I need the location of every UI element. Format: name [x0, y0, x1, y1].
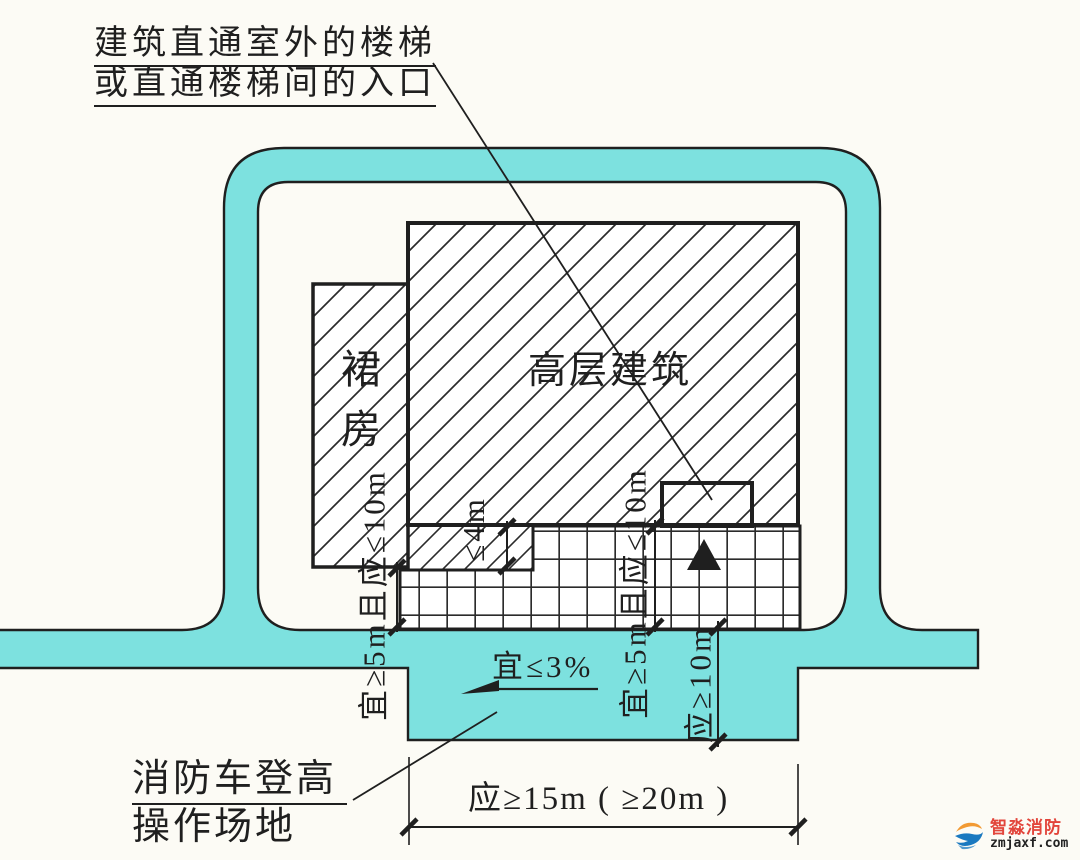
podium-projection-dimension: ≤4m — [456, 496, 492, 562]
site-length-dimension: 应≥15m ( ≥20m ) — [468, 782, 729, 817]
watermark-brand: 智淼消防 — [990, 819, 1068, 837]
podium-label: 裙房 — [338, 340, 384, 460]
diagram-canvas — [0, 0, 1080, 860]
stair-note-line1: 建筑直通室外的楼梯 — [94, 26, 436, 67]
site-note-line2: 操作场地 — [132, 808, 296, 848]
site-depth-dimension: 应≥10m — [675, 625, 720, 743]
site-note-line1: 消防车登高 — [132, 760, 347, 805]
watermark: 智淼消防 zmjaxf.com — [952, 818, 1068, 852]
highrise-label: 高层建筑 — [528, 352, 692, 392]
zmjaxf-logo-icon — [952, 818, 986, 852]
right-offset-dimension: 宜≥5m且应≤10m — [610, 467, 655, 719]
stair-note-line2: 或直通楼梯间的入口 — [94, 66, 436, 107]
fire-access-diagram: 建筑直通室外的楼梯 或直通楼梯间的入口 高层建筑 裙房 宜≤3% 消防车登高 操… — [0, 0, 1080, 860]
slope-label: 宜≤3% — [492, 651, 593, 684]
left-offset-dimension: 宜≥5m且应≤10m — [349, 469, 394, 721]
watermark-site: zmjaxf.com — [990, 837, 1068, 851]
